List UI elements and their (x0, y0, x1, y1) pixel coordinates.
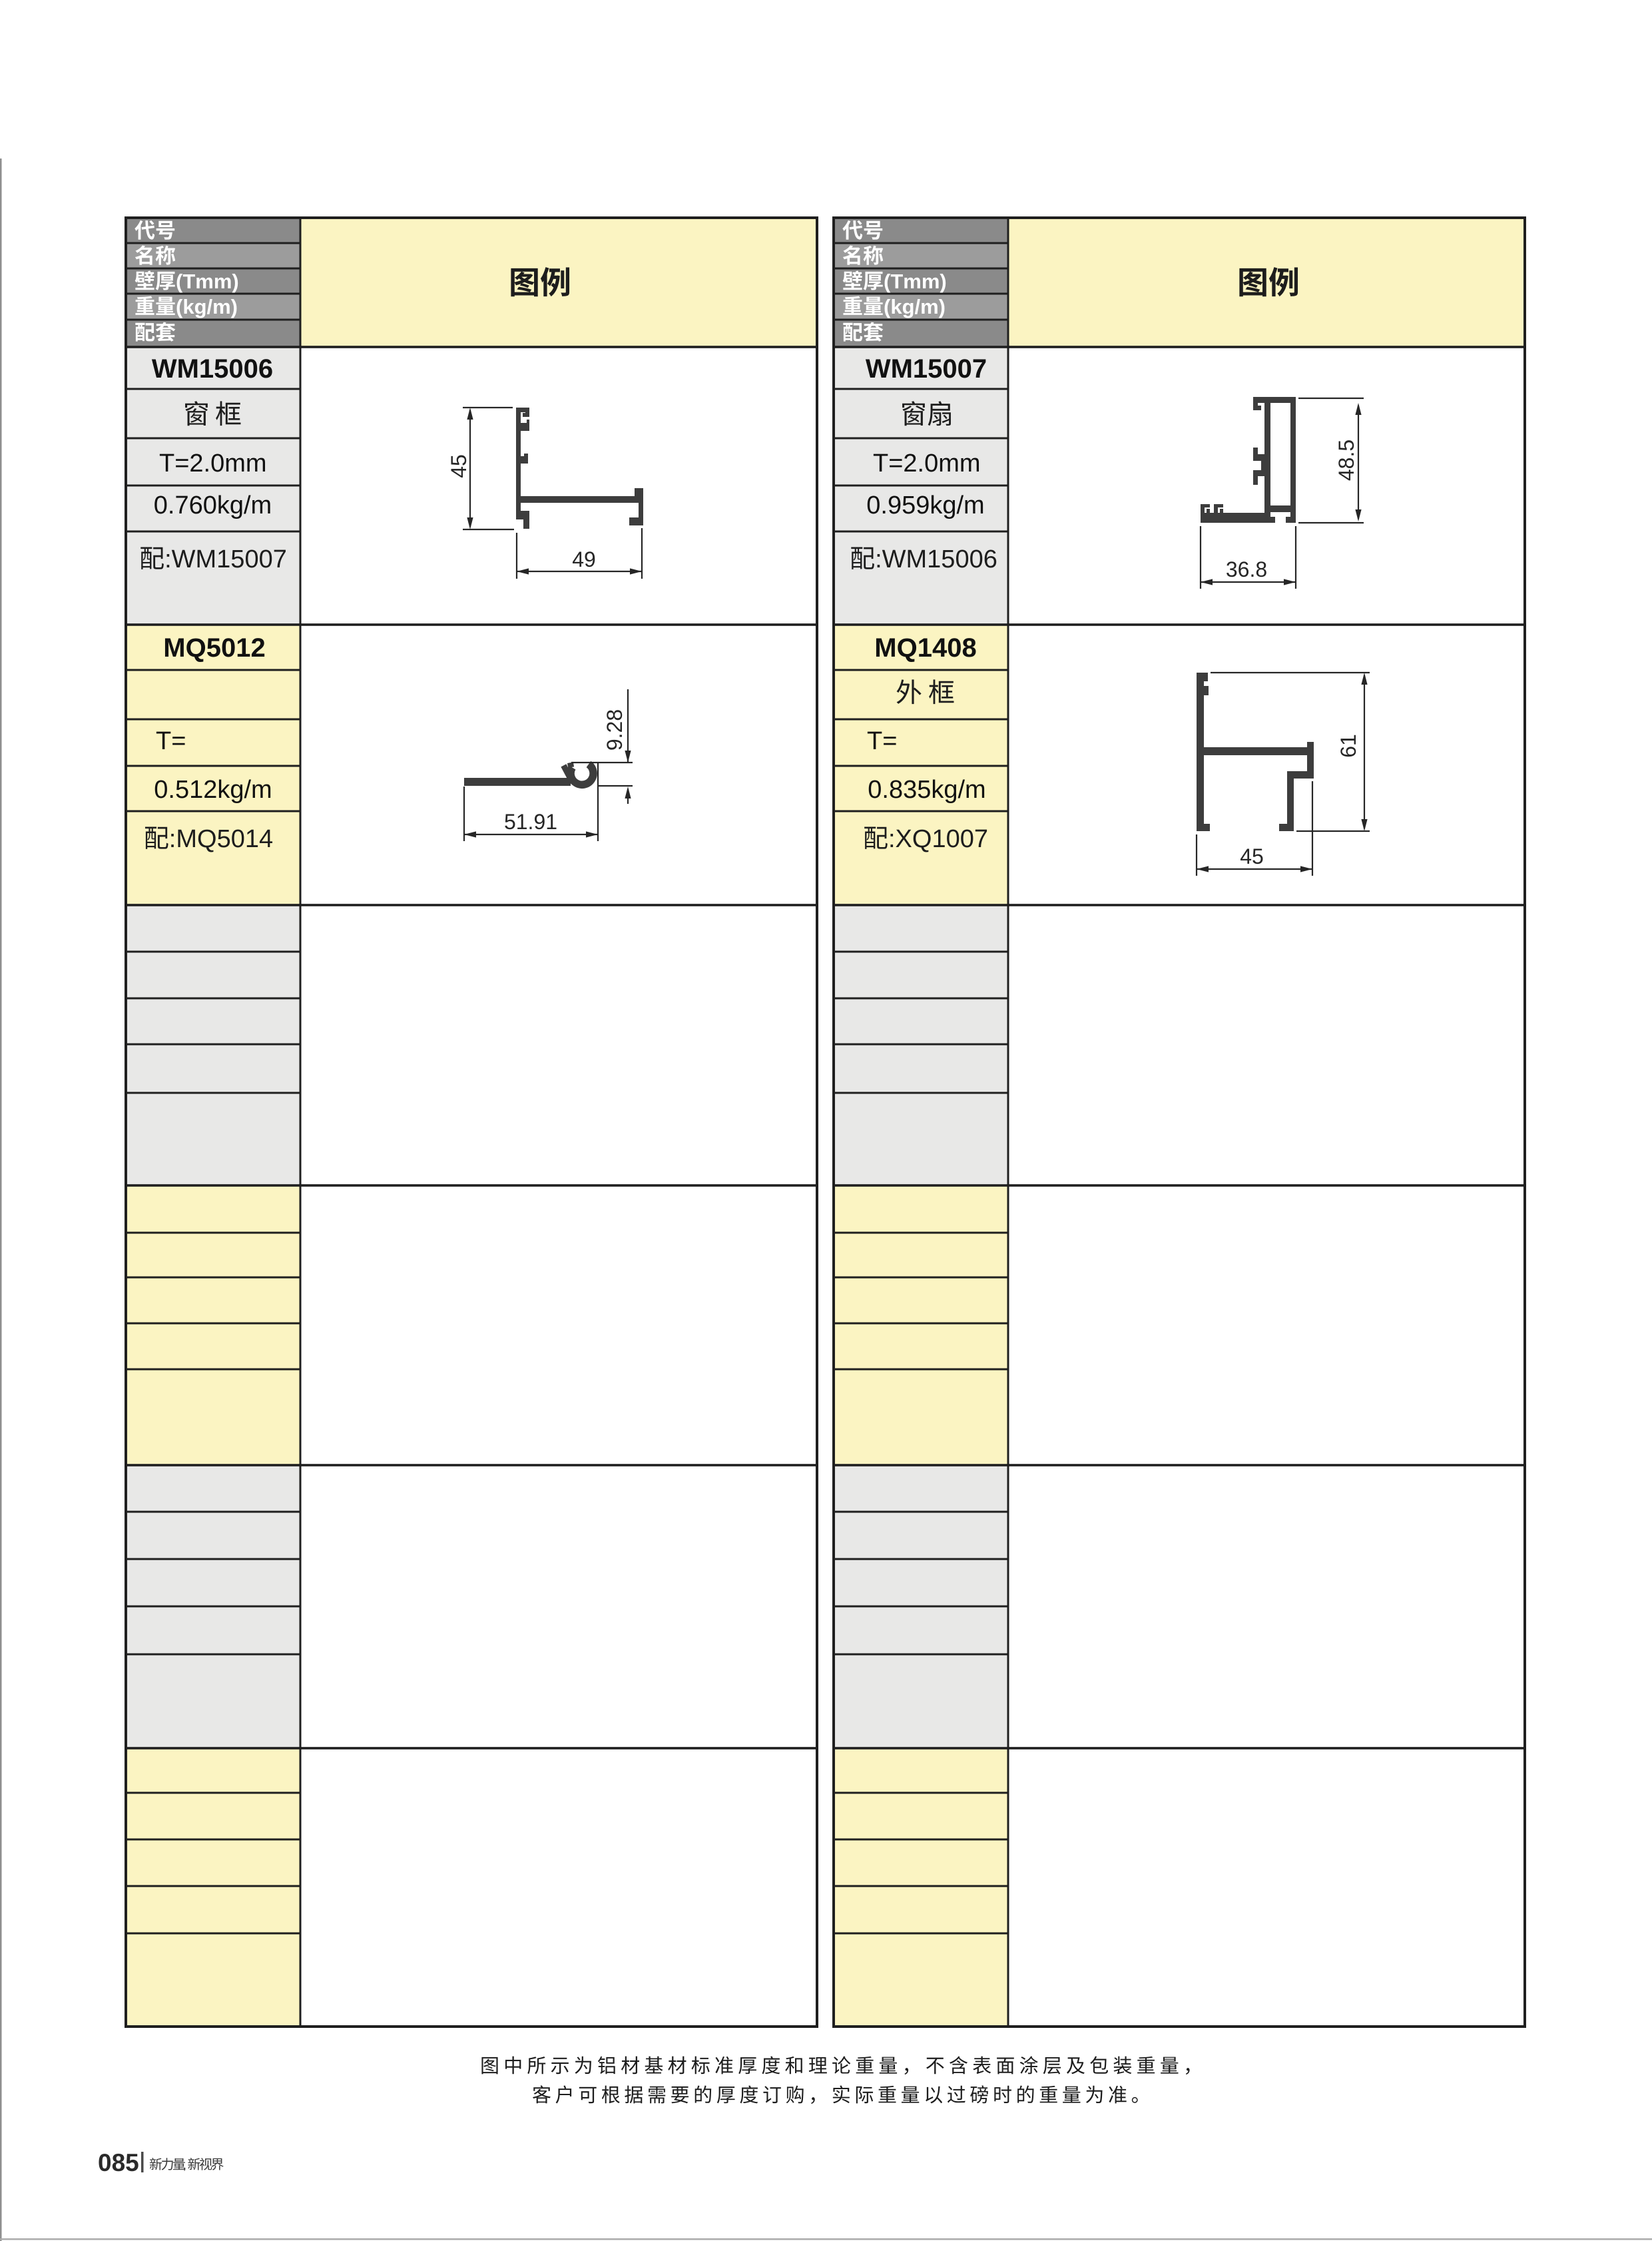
svg-text:T=2.0mm: T=2.0mm (873, 450, 981, 478)
svg-text:49: 49 (572, 547, 596, 571)
svg-text:WM15007: WM15007 (866, 354, 987, 384)
svg-text:0.512kg/m: 0.512kg/m (154, 776, 272, 804)
svg-text:085: 085 (98, 2149, 139, 2176)
svg-text:(kg/m): (kg/m) (176, 295, 238, 318)
svg-text:,: , (183, 2158, 187, 2172)
svg-text:(Tmm): (Tmm) (176, 270, 239, 293)
svg-text::MQ5014: :MQ5014 (169, 825, 273, 853)
svg-text:0.835kg/m: 0.835kg/m (868, 776, 985, 804)
svg-text:T=2.0mm: T=2.0mm (159, 450, 267, 478)
svg-text:48.5: 48.5 (1334, 440, 1358, 481)
svg-text:(kg/m): (kg/m) (884, 295, 946, 318)
svg-text:0.959kg/m: 0.959kg/m (866, 491, 984, 519)
svg-text::XQ1007: :XQ1007 (888, 825, 988, 853)
svg-text:61: 61 (1336, 734, 1360, 758)
svg-text:(Tmm): (Tmm) (884, 270, 947, 293)
svg-text:45: 45 (447, 454, 471, 478)
svg-text:MQ1408: MQ1408 (874, 633, 976, 663)
svg-text:45: 45 (1240, 844, 1264, 868)
svg-text:T=: T= (156, 727, 186, 755)
svg-text:T=: T= (867, 727, 897, 755)
svg-text::WM15006: :WM15006 (875, 545, 997, 573)
svg-text:51.91: 51.91 (504, 810, 557, 834)
svg-text::WM15007: :WM15007 (164, 545, 287, 573)
svg-text:MQ5012: MQ5012 (163, 633, 265, 663)
svg-text:36.8: 36.8 (1226, 557, 1267, 581)
svg-text:9.28: 9.28 (603, 709, 627, 751)
svg-text:WM15006: WM15006 (152, 354, 273, 384)
svg-text:0.760kg/m: 0.760kg/m (154, 491, 272, 519)
